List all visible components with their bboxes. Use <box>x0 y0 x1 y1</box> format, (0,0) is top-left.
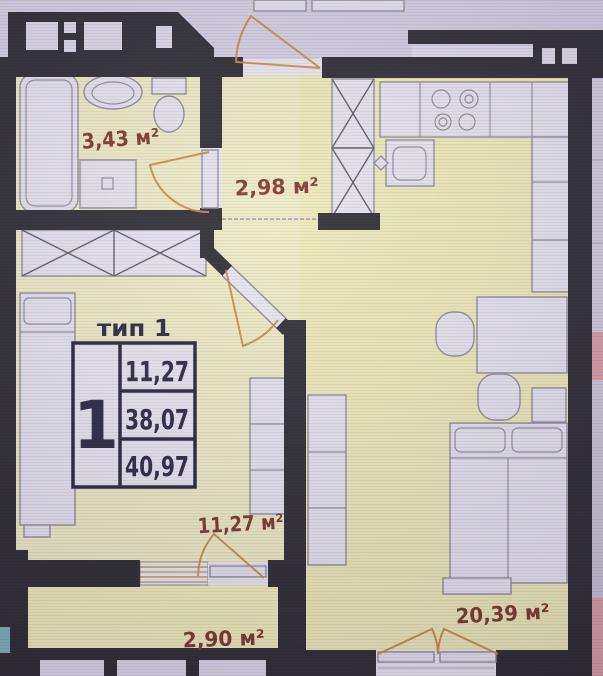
toilet-tank-icon <box>152 78 186 94</box>
hallway-furniture <box>332 79 374 217</box>
floor-plan: тип 1 1 11,27 38,07 40,97 3,43 м² 2,98 м… <box>0 0 603 676</box>
sofa-bed-icon <box>20 293 75 525</box>
wall-balcony-right <box>278 560 306 676</box>
neighbor-fixture <box>312 0 404 11</box>
kitchen-column-icon <box>532 137 570 292</box>
neighbor-fixture <box>254 0 306 11</box>
wall-bottom-right-of-door <box>496 650 592 676</box>
radiator-icon <box>24 525 50 537</box>
hallway-area-label: 2,98 м² <box>234 174 319 201</box>
balcony-glazing <box>199 660 266 676</box>
dining-table-icon <box>477 297 567 373</box>
stamp-living-area: 11,27 <box>125 355 189 388</box>
tv-stand-icon <box>308 395 346 565</box>
living-room-area-label: 11,27 м² <box>197 510 284 538</box>
stamp-rooms-count: 1 <box>73 387 119 464</box>
neighbor-wall-band <box>412 46 533 58</box>
stamp-apartment-area: 38,07 <box>125 403 189 436</box>
wall-room-divider <box>284 320 306 570</box>
wall-living-bottom <box>20 560 140 587</box>
washing-machine-icon <box>80 160 136 208</box>
french-door-leaf-left <box>378 652 434 662</box>
stamp-title: тип 1 <box>97 316 171 342</box>
kitchen-counter-icon <box>380 82 572 137</box>
french-door-leaf-right <box>440 652 496 662</box>
floor-plan-drawing: тип 1 1 11,27 38,07 40,97 3,43 м² 2,98 м… <box>0 0 603 676</box>
chair-icon <box>436 312 474 356</box>
wall-bottom-left-of-door <box>306 650 376 676</box>
bathroom-door-leaf <box>202 150 218 208</box>
wall-bathroom-right-upper <box>200 77 222 150</box>
bathtub-icon <box>20 74 78 212</box>
kitchen-living-area-label: 20,39 м² <box>455 600 550 629</box>
wall-top-left <box>0 57 243 77</box>
neighbor-balcony-teal <box>0 627 10 653</box>
stamp-total-area: 40,97 <box>125 450 189 483</box>
chair-icon <box>478 374 520 420</box>
wall-bathroom-bottom <box>0 210 222 230</box>
balcony-glazing <box>117 660 186 676</box>
spec-stamp: тип 1 1 11,27 38,07 40,97 <box>73 316 195 487</box>
wall-below-wardrobe <box>318 213 380 230</box>
nightstand-icon <box>532 388 566 422</box>
wall-right <box>568 78 592 652</box>
bench-icon <box>443 578 511 594</box>
balcony-area-label: 2,90 м² <box>182 626 265 653</box>
balcony-glazing <box>40 660 104 676</box>
